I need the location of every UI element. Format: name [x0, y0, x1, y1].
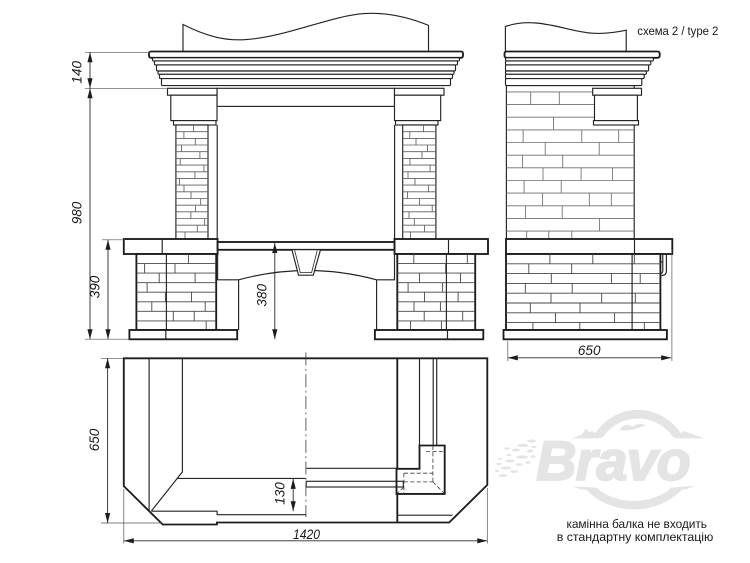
svg-text:380: 380	[254, 284, 269, 307]
svg-text:в стандартну комплектацію: в стандартну комплектацію	[557, 530, 714, 544]
svg-text:650: 650	[87, 428, 102, 451]
svg-text:390: 390	[88, 275, 103, 298]
svg-text:Bravo: Bravo	[536, 429, 690, 492]
svg-text:130: 130	[273, 482, 288, 505]
svg-text:140: 140	[70, 61, 85, 84]
svg-text:1420: 1420	[293, 527, 320, 542]
svg-text:650: 650	[578, 343, 601, 358]
svg-text:схема 2 / type 2: схема 2 / type 2	[637, 24, 718, 38]
svg-text:980: 980	[70, 201, 85, 224]
